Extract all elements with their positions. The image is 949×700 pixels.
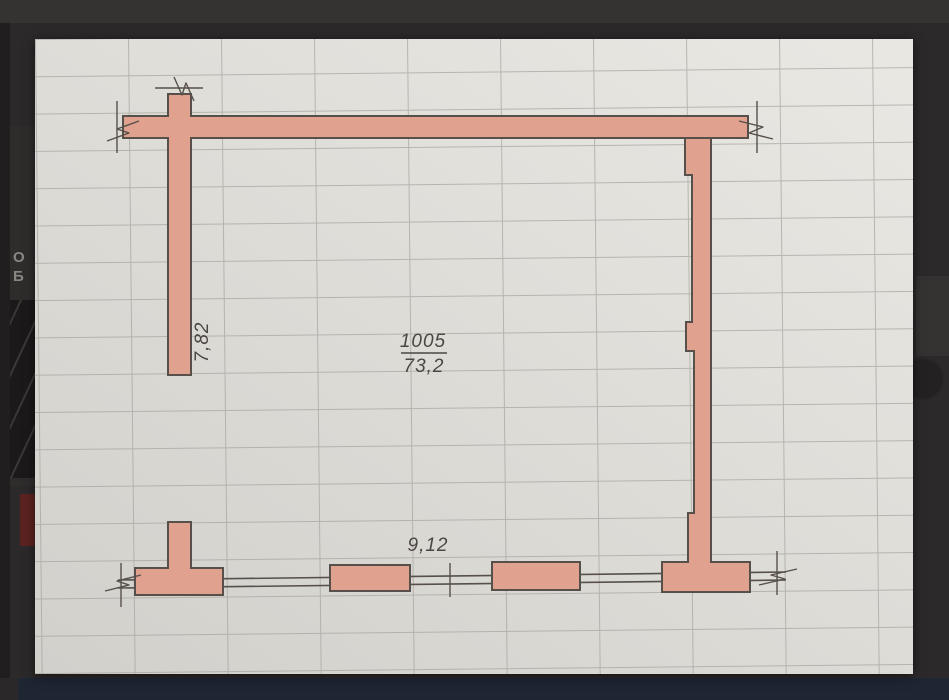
- bottom-navy-bar: [0, 678, 949, 700]
- pier-bottom-middle-1: [330, 565, 410, 591]
- dimension-horizontal-label: 9,12: [408, 535, 449, 556]
- pier-bottom-middle-2: [492, 562, 580, 590]
- background-text-line1: О: [13, 248, 35, 267]
- room-number-text: 1005: [400, 331, 446, 352]
- bottom-bar-left-corner: [0, 678, 18, 700]
- background-left-edge: [0, 23, 10, 678]
- floor-plan-drawing: 7,82 1005 73,2 9,12: [35, 39, 913, 674]
- floor-plan-photo[interactable]: 7,82 1005 73,2 9,12: [35, 39, 913, 674]
- room-area-text: 73,2: [404, 356, 445, 377]
- background-text-fragment: О Б: [13, 248, 35, 290]
- background-red-badge-fragment: [20, 494, 35, 546]
- background-thumbnail-fragment: [10, 300, 35, 478]
- photo-viewer: О Б: [0, 0, 949, 700]
- background-top-strip: [0, 0, 949, 23]
- background-right-patch: [916, 276, 949, 356]
- dimension-vertical-label: 7,82: [192, 322, 213, 363]
- background-text-line2: Б: [13, 267, 35, 286]
